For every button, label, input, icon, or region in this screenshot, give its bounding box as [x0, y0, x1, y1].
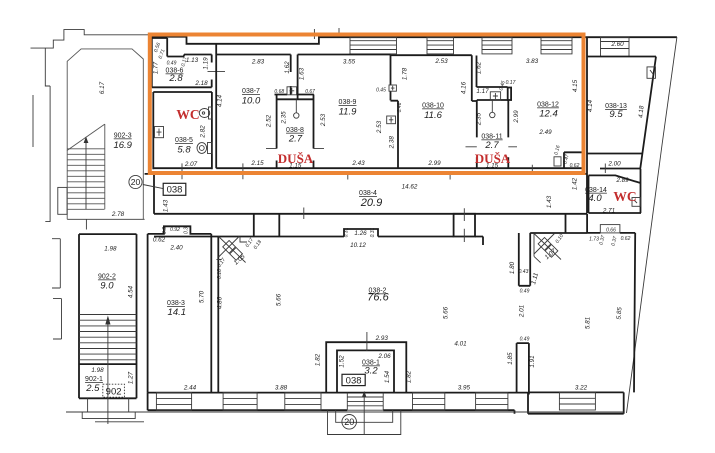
svg-text:2.49: 2.49: [538, 129, 552, 136]
svg-text:1.15: 1.15: [486, 162, 499, 169]
svg-text:2.93: 2.93: [375, 335, 389, 342]
svg-text:3.22: 3.22: [575, 385, 588, 392]
svg-text:10.0: 10.0: [242, 96, 261, 107]
svg-text:1.13: 1.13: [186, 57, 199, 64]
svg-text:1.54: 1.54: [384, 370, 391, 383]
svg-text:0.62: 0.62: [621, 236, 631, 242]
svg-text:2.78: 2.78: [111, 211, 125, 218]
svg-text:2.00: 2.00: [607, 161, 621, 168]
svg-text:1.19: 1.19: [203, 57, 210, 70]
svg-text:2.40: 2.40: [169, 245, 183, 252]
svg-text:1.80: 1.80: [509, 261, 516, 274]
svg-text:20: 20: [131, 177, 141, 187]
svg-text:1.62: 1.62: [284, 61, 291, 74]
svg-text:3.2: 3.2: [364, 366, 378, 377]
svg-text:038-9: 038-9: [339, 99, 357, 106]
svg-text:3.88: 3.88: [275, 385, 288, 392]
svg-text:2.5: 2.5: [85, 383, 100, 394]
svg-text:0.46: 0.46: [397, 102, 403, 112]
svg-text:0.62: 0.62: [570, 163, 580, 169]
svg-text:5.85: 5.85: [615, 306, 623, 319]
svg-text:4.0: 4.0: [588, 193, 602, 204]
svg-text:038-10: 038-10: [422, 103, 444, 110]
svg-text:1.63: 1.63: [299, 67, 306, 80]
svg-text:1.43: 1.43: [162, 199, 169, 212]
svg-text:1.85: 1.85: [507, 352, 514, 365]
svg-text:1.62: 1.62: [476, 61, 483, 74]
svg-text:WC: WC: [176, 107, 199, 122]
svg-text:2.43: 2.43: [351, 160, 365, 167]
svg-text:2.52: 2.52: [266, 114, 273, 128]
svg-text:16.9: 16.9: [113, 140, 132, 151]
svg-text:5.66: 5.66: [275, 293, 282, 306]
svg-text:4.18: 4.18: [637, 105, 645, 118]
svg-text:4.14: 4.14: [587, 99, 594, 112]
svg-text:038: 038: [346, 375, 362, 386]
svg-text:1.43: 1.43: [546, 195, 553, 208]
svg-text:1.26: 1.26: [354, 230, 367, 237]
svg-text:0.49: 0.49: [520, 337, 530, 343]
svg-text:4.16: 4.16: [461, 81, 468, 94]
svg-text:2.82: 2.82: [200, 125, 207, 139]
svg-text:4.01: 4.01: [454, 341, 466, 348]
svg-text:9.0: 9.0: [100, 281, 114, 292]
svg-text:20: 20: [344, 417, 354, 427]
svg-text:0.45: 0.45: [376, 88, 386, 94]
svg-text:2.15: 2.15: [250, 160, 264, 167]
svg-text:12.4: 12.4: [539, 109, 558, 120]
svg-text:2.7: 2.7: [288, 133, 303, 144]
svg-text:76.6: 76.6: [367, 292, 389, 304]
svg-text:1.27: 1.27: [127, 371, 134, 384]
svg-text:902-2: 902-2: [98, 274, 116, 281]
svg-text:2.99: 2.99: [427, 160, 441, 167]
svg-text:0.31: 0.31: [344, 227, 350, 237]
svg-text:4.54: 4.54: [127, 285, 134, 298]
svg-text:5.70: 5.70: [199, 290, 206, 303]
svg-text:20.9: 20.9: [360, 197, 382, 209]
svg-text:4.15: 4.15: [572, 79, 579, 92]
svg-text:0.31: 0.31: [370, 227, 376, 237]
svg-text:3.83: 3.83: [526, 58, 539, 65]
svg-text:5.66: 5.66: [443, 306, 450, 319]
svg-text:0.16: 0.16: [217, 269, 223, 279]
svg-text:0.62: 0.62: [153, 237, 166, 244]
svg-text:038: 038: [167, 185, 183, 196]
svg-text:1.77: 1.77: [153, 61, 160, 74]
svg-text:10.12: 10.12: [350, 242, 366, 249]
svg-text:2.01: 2.01: [519, 305, 526, 318]
svg-text:0.67: 0.67: [305, 89, 315, 95]
svg-text:2.18: 2.18: [194, 80, 208, 87]
svg-text:038-3: 038-3: [167, 300, 185, 307]
svg-text:038-4: 038-4: [359, 190, 377, 197]
svg-text:2.53: 2.53: [320, 113, 327, 127]
svg-text:038-7: 038-7: [242, 88, 260, 95]
svg-text:11.9: 11.9: [339, 107, 358, 118]
svg-text:6.17: 6.17: [99, 81, 106, 94]
svg-text:11.6: 11.6: [424, 110, 443, 121]
svg-text:1.17: 1.17: [476, 88, 489, 95]
svg-text:1.42: 1.42: [572, 177, 579, 190]
svg-text:902-3: 902-3: [114, 133, 132, 140]
svg-text:1.98: 1.98: [91, 367, 104, 374]
svg-text:2.71: 2.71: [602, 207, 615, 214]
svg-text:0.92: 0.92: [170, 227, 180, 233]
svg-text:WC: WC: [613, 189, 636, 204]
svg-text:0.17: 0.17: [506, 80, 516, 86]
svg-text:1.82: 1.82: [315, 353, 322, 366]
svg-text:2.89: 2.89: [615, 177, 629, 184]
svg-text:2.35: 2.35: [476, 112, 483, 126]
svg-text:0.49: 0.49: [520, 289, 530, 295]
svg-text:5.81: 5.81: [585, 317, 592, 329]
svg-text:9.5: 9.5: [609, 109, 623, 120]
svg-text:3.95: 3.95: [458, 385, 471, 392]
svg-text:2.44: 2.44: [183, 385, 197, 392]
svg-text:0.66: 0.66: [606, 228, 616, 234]
svg-text:0.3: 0.3: [184, 227, 190, 234]
svg-text:2.35: 2.35: [280, 111, 287, 125]
svg-text:1.78: 1.78: [402, 67, 409, 80]
svg-text:2.60: 2.60: [610, 41, 624, 48]
svg-text:902: 902: [106, 387, 122, 398]
svg-text:1.82: 1.82: [406, 370, 413, 383]
svg-text:1.15: 1.15: [289, 162, 302, 169]
svg-text:902-1: 902-1: [85, 376, 103, 383]
svg-text:1.73: 1.73: [589, 237, 599, 243]
svg-text:038-5: 038-5: [175, 137, 193, 144]
svg-text:2.38: 2.38: [389, 136, 396, 150]
svg-text:14.62: 14.62: [402, 184, 418, 191]
svg-text:2.99: 2.99: [513, 110, 520, 124]
svg-text:3.55: 3.55: [343, 59, 356, 66]
svg-text:4.86: 4.86: [217, 296, 224, 309]
svg-text:4.14: 4.14: [217, 94, 224, 107]
svg-text:2.53: 2.53: [376, 120, 383, 134]
svg-text:1.91: 1.91: [529, 355, 536, 367]
svg-text:1.52: 1.52: [339, 355, 346, 368]
svg-text:2.07: 2.07: [184, 161, 198, 168]
svg-text:2.8: 2.8: [168, 73, 183, 84]
svg-text:2.06: 2.06: [377, 353, 391, 360]
svg-text:2.7: 2.7: [484, 140, 499, 151]
svg-text:0.3: 0.3: [162, 227, 168, 234]
svg-text:1.98: 1.98: [104, 246, 117, 253]
svg-text:2.83: 2.83: [251, 59, 265, 66]
svg-text:038-12: 038-12: [537, 102, 559, 109]
svg-text:5.8: 5.8: [177, 145, 191, 156]
svg-text:0.43: 0.43: [519, 269, 529, 275]
svg-text:14.1: 14.1: [168, 307, 187, 318]
svg-text:2.53: 2.53: [434, 58, 448, 65]
svg-text:0.68: 0.68: [274, 89, 284, 95]
svg-text:0.49: 0.49: [167, 61, 177, 67]
